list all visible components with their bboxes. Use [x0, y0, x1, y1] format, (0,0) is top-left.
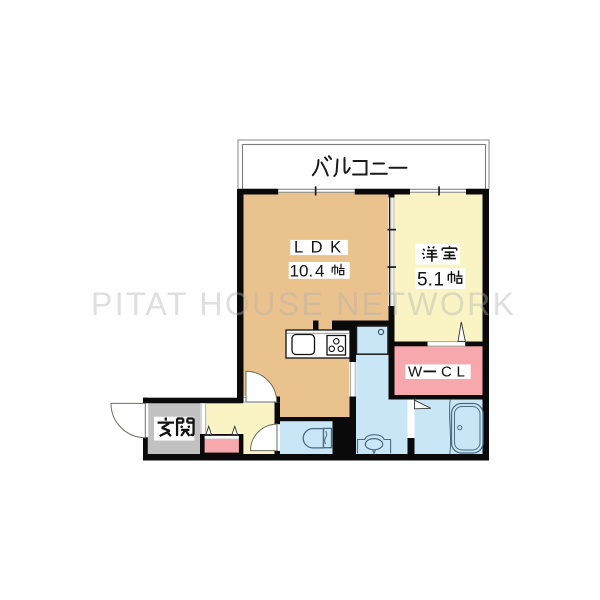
- svg-text:PITAT HOUSE NETWORK: PITAT HOUSE NETWORK: [91, 286, 514, 322]
- svg-text:L: L: [457, 364, 465, 381]
- svg-text:C: C: [441, 364, 452, 381]
- svg-text:LDK: LDK: [294, 239, 349, 257]
- svg-text:W: W: [408, 364, 423, 381]
- svg-text:4: 4: [315, 261, 324, 280]
- svg-text:10.: 10.: [290, 261, 314, 280]
